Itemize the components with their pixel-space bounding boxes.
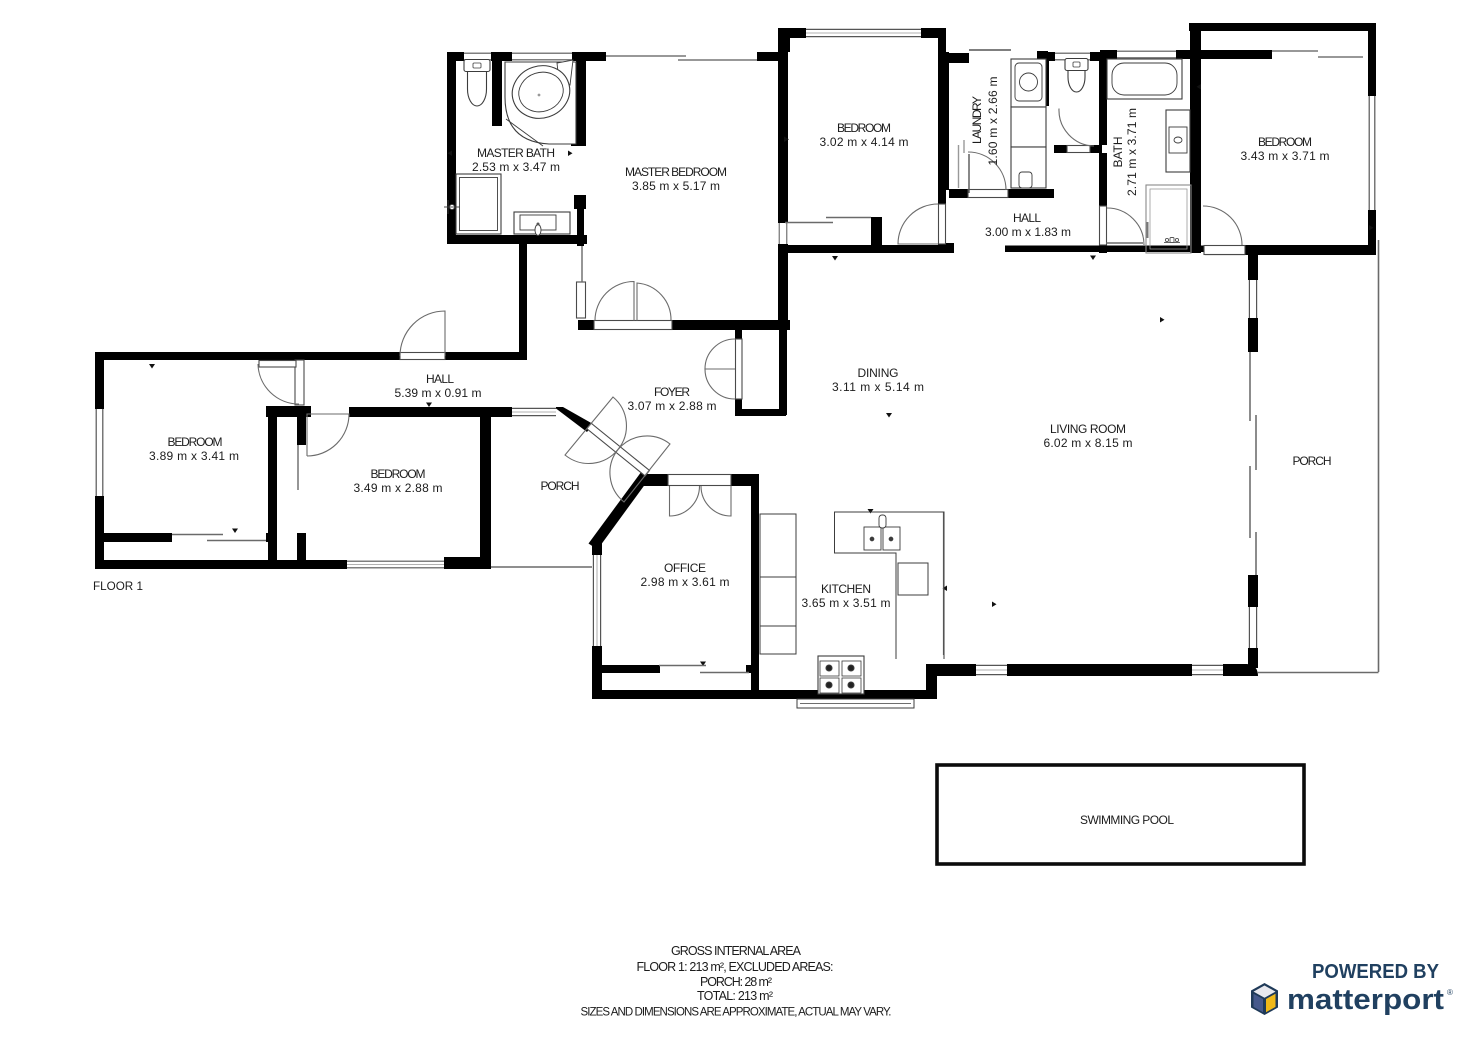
svg-text:SWIMMING POOL: SWIMMING POOL bbox=[1080, 813, 1174, 827]
svg-text:LAUNDRY: LAUNDRY bbox=[970, 96, 984, 144]
svg-text:DINING: DINING bbox=[858, 366, 899, 380]
svg-text:6.02 m x 8.15 m: 6.02 m x 8.15 m bbox=[1044, 436, 1133, 450]
svg-text:3.49 m x 2.88 m: 3.49 m x 2.88 m bbox=[354, 481, 443, 495]
svg-text:PORCH: 28 m²: PORCH: 28 m² bbox=[700, 975, 772, 989]
svg-text:3.65 m x 3.51 m: 3.65 m x 3.51 m bbox=[802, 596, 891, 610]
svg-text:®: ® bbox=[1447, 988, 1453, 997]
svg-text:BEDROOM: BEDROOM bbox=[837, 121, 891, 135]
svg-text:SIZES AND DIMENSIONS ARE APPRO: SIZES AND DIMENSIONS ARE APPROXIMATE, AC… bbox=[581, 1007, 892, 1019]
svg-text:matterport: matterport bbox=[1287, 984, 1444, 1016]
svg-text:HALL: HALL bbox=[1013, 211, 1041, 225]
svg-text:GROSS INTERNAL AREA: GROSS INTERNAL AREA bbox=[671, 944, 802, 958]
svg-text:TOTAL: 213 m²: TOTAL: 213 m² bbox=[697, 989, 773, 1003]
svg-text:PORCH: PORCH bbox=[1293, 454, 1332, 468]
svg-text:BEDROOM: BEDROOM bbox=[1258, 135, 1312, 149]
svg-text:HALL: HALL bbox=[426, 372, 454, 386]
svg-text:3.02 m x 4.14 m: 3.02 m x 4.14 m bbox=[820, 135, 909, 149]
svg-text:3.89 m x 3.41 m: 3.89 m x 3.41 m bbox=[149, 449, 239, 463]
svg-text:FLOOR 1: FLOOR 1 bbox=[93, 579, 143, 593]
svg-text:3.85 m x 5.17 m: 3.85 m x 5.17 m bbox=[632, 179, 720, 193]
svg-text:3.43 m x 3.71 m: 3.43 m x 3.71 m bbox=[1241, 149, 1330, 163]
svg-text:BEDROOM: BEDROOM bbox=[168, 435, 223, 449]
svg-text:2.53 m x 3.47 m: 2.53 m x 3.47 m bbox=[472, 160, 560, 174]
svg-text:BATH: BATH bbox=[1111, 137, 1125, 168]
svg-text:2.71 m x 3.71 m: 2.71 m x 3.71 m bbox=[1125, 108, 1139, 196]
svg-text:3.07 m x 2.88 m: 3.07 m x 2.88 m bbox=[628, 399, 717, 413]
svg-text:PORCH: PORCH bbox=[541, 479, 580, 493]
svg-text:POWERED BY: POWERED BY bbox=[1312, 960, 1439, 983]
svg-text:KITCHEN: KITCHEN bbox=[821, 582, 871, 596]
svg-text:3.11 m x 5.14 m: 3.11 m x 5.14 m bbox=[832, 380, 924, 394]
svg-text:2.98 m x 3.61 m: 2.98 m x 3.61 m bbox=[641, 575, 730, 589]
svg-text:OFFICE: OFFICE bbox=[664, 561, 706, 575]
svg-text:1.60 m x 2.66 m: 1.60 m x 2.66 m bbox=[986, 77, 1000, 166]
svg-text:FOYER: FOYER bbox=[654, 385, 690, 399]
svg-text:MASTER BEDROOM: MASTER BEDROOM bbox=[625, 165, 727, 179]
svg-text:LIVING ROOM: LIVING ROOM bbox=[1050, 422, 1126, 436]
svg-text:5.39 m x 0.91 m: 5.39 m x 0.91 m bbox=[395, 386, 482, 400]
svg-text:3.00 m x 1.83 m: 3.00 m x 1.83 m bbox=[985, 225, 1071, 239]
svg-text:MASTER BATH: MASTER BATH bbox=[477, 146, 555, 160]
svg-text:BEDROOM: BEDROOM bbox=[371, 467, 426, 481]
svg-text:FLOOR 1: 213 m², EXCLUDED AREA: FLOOR 1: 213 m², EXCLUDED AREAS: bbox=[637, 960, 834, 974]
